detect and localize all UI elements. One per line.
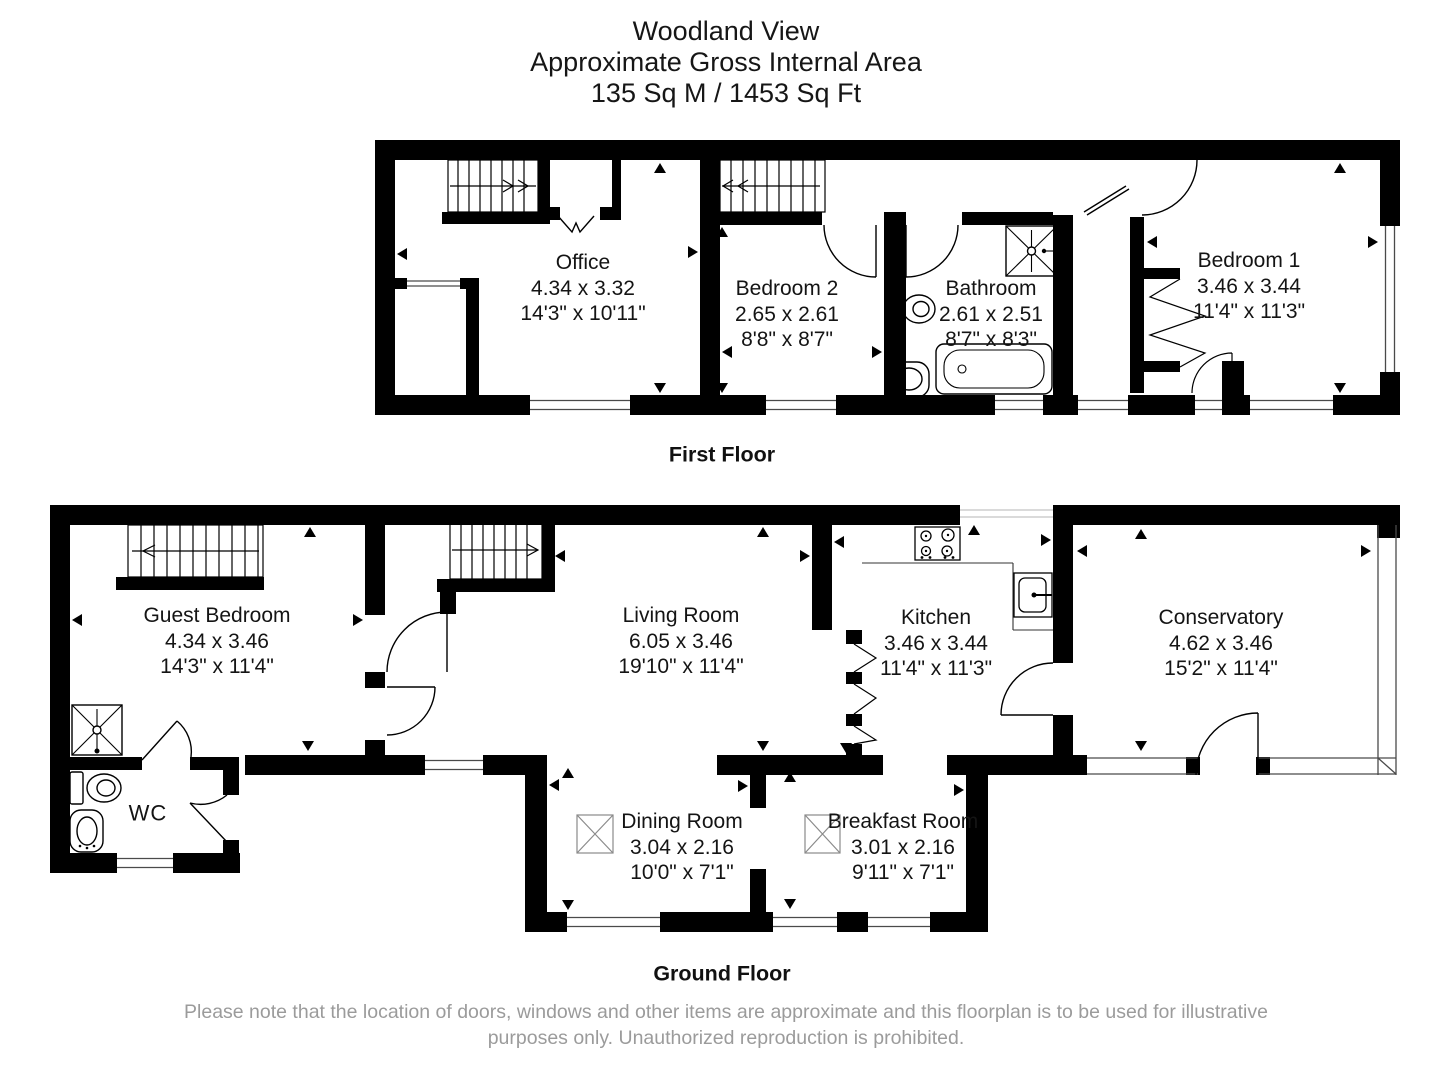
floorplan-page: Woodland View Approximate Gross Internal… <box>0 0 1452 1080</box>
toilet-icon <box>70 772 121 804</box>
room-name: WC <box>129 800 168 826</box>
room-name: Guest Bedroom <box>143 603 290 629</box>
stove-icon <box>915 527 960 560</box>
stairs-icon <box>450 522 542 579</box>
room-dim-imperial: 19'10" x 11'4" <box>618 654 743 680</box>
title-area: 135 Sq M / 1453 Sq Ft <box>0 78 1452 109</box>
room-name: Bedroom 1 <box>1193 248 1305 274</box>
room-dim-metric: 3.04 x 2.16 <box>621 834 742 860</box>
room-label-breakfast-room: Breakfast Room 3.01 x 2.16 9'11" x 7'1" <box>828 809 979 886</box>
floorplan-drawing <box>0 0 1452 1080</box>
ground-floor-label: Ground Floor <box>653 962 790 987</box>
room-label-office: Office 4.34 x 3.32 14'3" x 10'11" <box>520 250 645 327</box>
door-arc-icon <box>1001 663 1053 715</box>
room-label-kitchen: Kitchen 3.46 x 3.44 11'4" x 11'3" <box>880 605 992 682</box>
shower-icon <box>72 705 122 755</box>
stairs-icon <box>448 160 538 212</box>
door-arc-icon <box>1196 713 1258 775</box>
room-dim-metric: 4.62 x 3.46 <box>1159 630 1284 656</box>
first-floor-label: First Floor <box>669 443 775 468</box>
room-name: Office <box>520 250 645 276</box>
bifold-doors-icon <box>854 644 876 744</box>
room-dim-imperial: 10'0" x 7'1" <box>621 860 742 886</box>
stairs-icon <box>128 525 263 577</box>
room-label-conservatory: Conservatory 4.62 x 3.46 15'2" x 11'4" <box>1159 605 1284 682</box>
plan-title: Woodland View Approximate Gross Internal… <box>0 16 1452 109</box>
room-dim-metric: 2.61 x 2.51 <box>939 301 1043 327</box>
room-dim-metric: 2.65 x 2.61 <box>735 301 839 327</box>
ground-floor-fixtures <box>70 527 1053 853</box>
room-name: Bedroom 2 <box>735 276 839 302</box>
room-name: Conservatory <box>1159 605 1284 631</box>
shower-icon <box>1006 226 1057 276</box>
door-arc-icon <box>1084 160 1197 215</box>
room-dim-metric: 4.34 x 3.46 <box>143 628 290 654</box>
room-dim-imperial: 11'4" x 11'3" <box>1193 299 1305 325</box>
property-name: Woodland View <box>0 16 1452 47</box>
room-label-bedroom1: Bedroom 1 3.46 x 3.44 11'4" x 11'3" <box>1193 248 1305 325</box>
door-arc-icon <box>906 225 958 277</box>
kitchen-sink-icon <box>1014 573 1052 617</box>
disclaimer-text: Please note that the location of doors, … <box>146 999 1306 1051</box>
room-label-dining-room: Dining Room 3.04 x 2.16 10'0" x 7'1" <box>621 809 742 886</box>
room-dim-metric: 3.46 x 3.44 <box>1193 273 1305 299</box>
door-arc-icon <box>824 225 876 277</box>
room-dim-imperial: 8'8" x 8'7" <box>735 327 839 353</box>
room-name: Dining Room <box>621 809 742 835</box>
room-name: Breakfast Room <box>828 809 979 835</box>
room-name: Living Room <box>618 603 743 629</box>
sink-icon <box>70 810 103 852</box>
room-label-wc: WC <box>129 800 168 826</box>
skylight-icon <box>577 815 613 853</box>
door-arc-icon <box>190 795 227 842</box>
door-arc-icon <box>387 612 447 672</box>
room-name: Bathroom <box>939 276 1043 302</box>
door-arc-icon <box>142 721 191 760</box>
room-dim-imperial: 8'7" x 8'3" <box>939 327 1043 353</box>
room-dim-imperial: 14'3" x 10'11" <box>520 301 645 327</box>
stairs-icon <box>720 160 825 212</box>
door-arc-icon <box>387 687 435 735</box>
room-label-guest-bedroom: Guest Bedroom 4.34 x 3.46 14'3" x 11'4" <box>143 603 290 680</box>
room-dim-imperial: 14'3" x 11'4" <box>143 654 290 680</box>
room-dim-metric: 3.01 x 2.16 <box>828 834 979 860</box>
room-dim-metric: 4.34 x 3.32 <box>520 275 645 301</box>
room-dim-metric: 3.46 x 3.44 <box>880 630 992 656</box>
room-name: Kitchen <box>880 605 992 631</box>
room-dim-imperial: 11'4" x 11'3" <box>880 656 992 682</box>
double-door-icon <box>558 216 594 232</box>
room-dim-metric: 6.05 x 3.46 <box>618 628 743 654</box>
room-dim-imperial: 15'2" x 11'4" <box>1159 656 1284 682</box>
room-dim-imperial: 9'11" x 7'1" <box>828 860 979 886</box>
room-label-living-room: Living Room 6.05 x 3.46 19'10" x 11'4" <box>618 603 743 680</box>
title-subline: Approximate Gross Internal Area <box>0 47 1452 78</box>
room-label-bathroom: Bathroom 2.61 x 2.51 8'7" x 8'3" <box>939 276 1043 353</box>
room-label-bedroom2: Bedroom 2 2.65 x 2.61 8'8" x 8'7" <box>735 276 839 353</box>
